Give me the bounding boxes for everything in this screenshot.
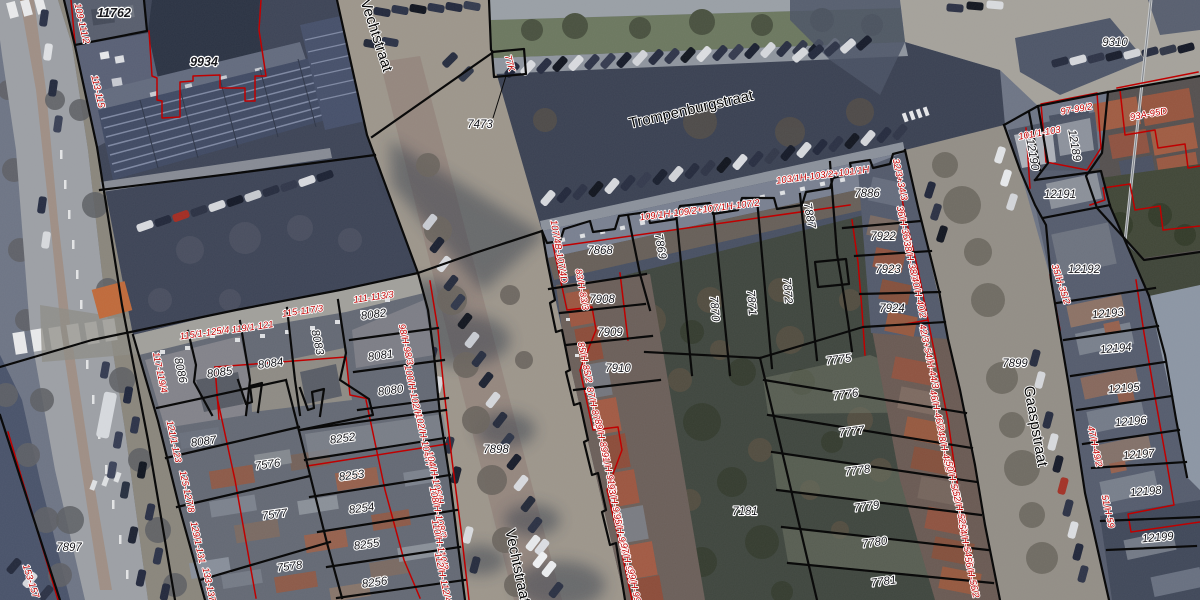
svg-text:12191: 12191 xyxy=(1044,189,1076,201)
svg-text:7871: 7871 xyxy=(744,289,758,316)
svg-text:7872: 7872 xyxy=(780,277,794,304)
svg-text:7924: 7924 xyxy=(879,303,905,315)
svg-text:11762: 11762 xyxy=(97,6,131,20)
svg-text:7897: 7897 xyxy=(56,542,82,554)
svg-text:7908: 7908 xyxy=(589,294,615,306)
svg-text:7181: 7181 xyxy=(732,506,758,518)
svg-text:9934: 9934 xyxy=(190,55,218,69)
svg-text:7909: 7909 xyxy=(597,327,623,339)
svg-text:7870: 7870 xyxy=(707,295,721,322)
svg-text:7910: 7910 xyxy=(605,363,631,375)
svg-text:7898: 7898 xyxy=(483,444,509,456)
svg-text:7899: 7899 xyxy=(1002,358,1028,370)
svg-text:7473: 7473 xyxy=(467,119,493,131)
svg-text:7868: 7868 xyxy=(587,245,613,257)
svg-text:9310: 9310 xyxy=(1102,37,1128,49)
svg-text:7922: 7922 xyxy=(870,231,896,243)
svg-text:7923: 7923 xyxy=(875,264,901,276)
svg-text:7886: 7886 xyxy=(854,188,880,200)
svg-text:12192: 12192 xyxy=(1068,264,1101,276)
